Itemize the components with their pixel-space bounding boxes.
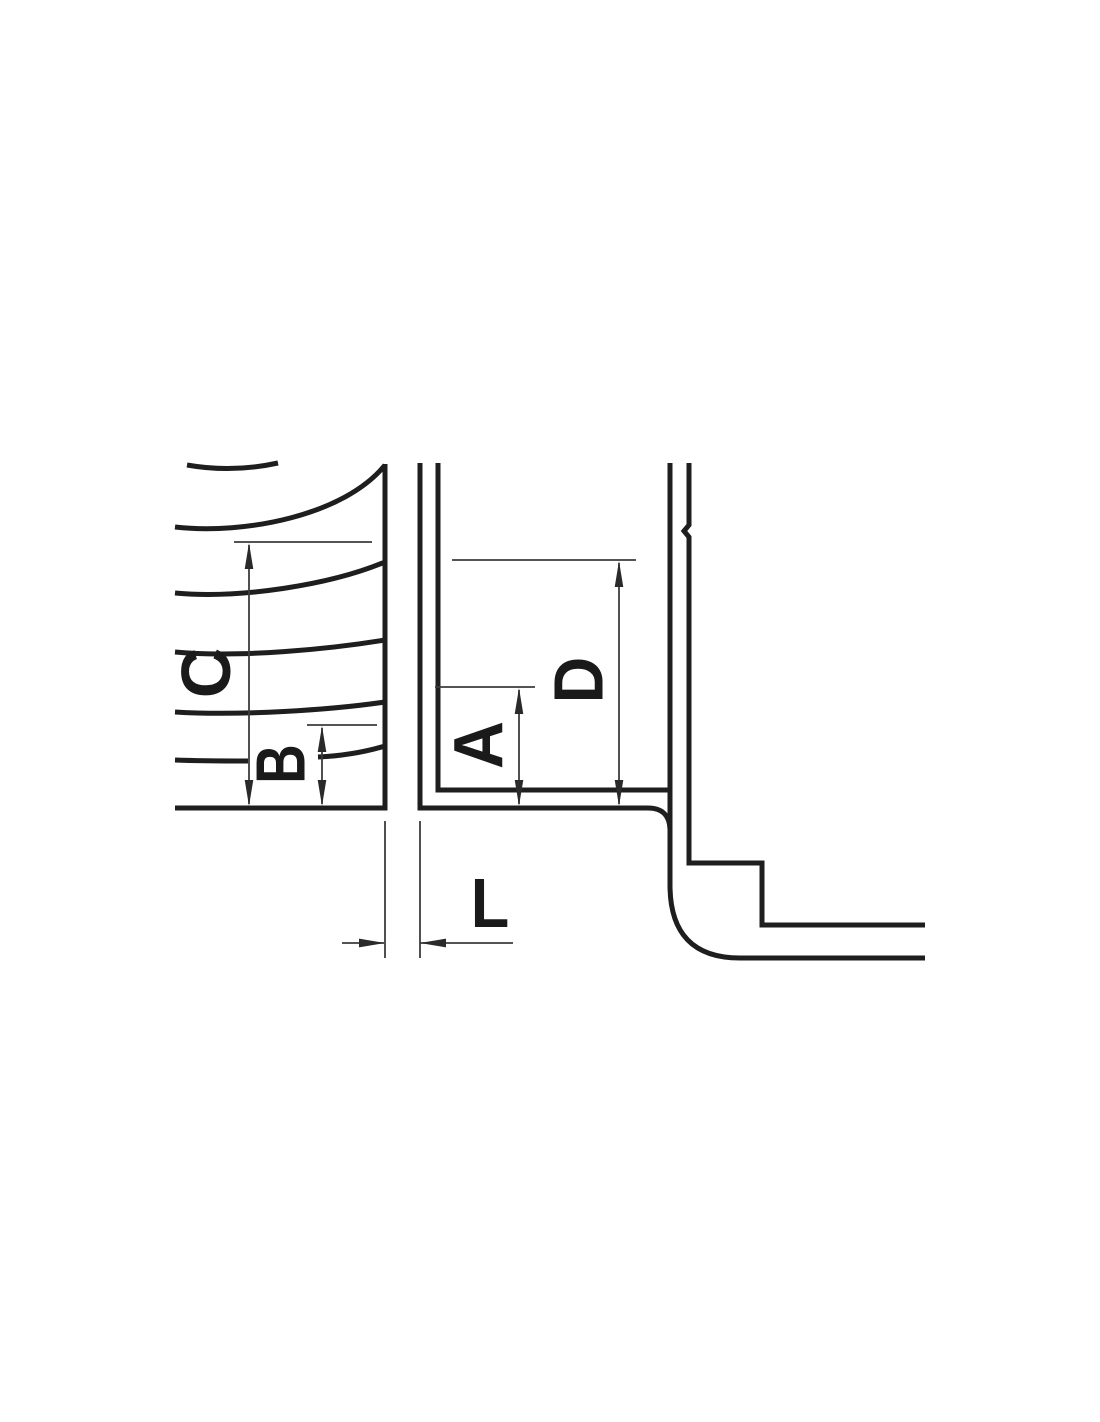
thread-curve bbox=[175, 465, 385, 529]
dimension-l-label: L bbox=[471, 865, 509, 943]
thread-curve bbox=[187, 463, 278, 469]
dimension-c-label: C bbox=[167, 648, 245, 699]
technical-section-drawing: C B A D bbox=[0, 0, 1100, 1422]
body-part bbox=[670, 463, 925, 958]
coupling-outer-contour bbox=[420, 463, 670, 829]
dimension-a-arrow-down bbox=[515, 780, 524, 806]
thread-curve bbox=[175, 562, 385, 594]
dimension-b: B bbox=[242, 725, 377, 806]
body-outer-contour bbox=[670, 463, 925, 958]
dimension-c-arrow-up bbox=[245, 543, 254, 569]
body-inner-contour bbox=[684, 463, 925, 925]
drawing-canvas: C B A D bbox=[0, 0, 1100, 1422]
dimension-a-label: A bbox=[440, 721, 518, 769]
dimension-b-label: B bbox=[242, 744, 320, 783]
dimension-l: L bbox=[342, 821, 513, 958]
dimension-d-arrow-up bbox=[615, 561, 624, 587]
dimension-l-arrow-left bbox=[420, 939, 446, 948]
dimension-d-label: D bbox=[540, 657, 618, 704]
dimension-d-arrow-down bbox=[615, 780, 624, 806]
thread-curve bbox=[318, 746, 385, 757]
dimension-a-arrow-up bbox=[515, 688, 524, 714]
coupling-part bbox=[420, 463, 670, 829]
thread-curve bbox=[175, 760, 248, 761]
dimension-l-arrow-right bbox=[359, 939, 385, 948]
thread-curve bbox=[175, 702, 385, 713]
